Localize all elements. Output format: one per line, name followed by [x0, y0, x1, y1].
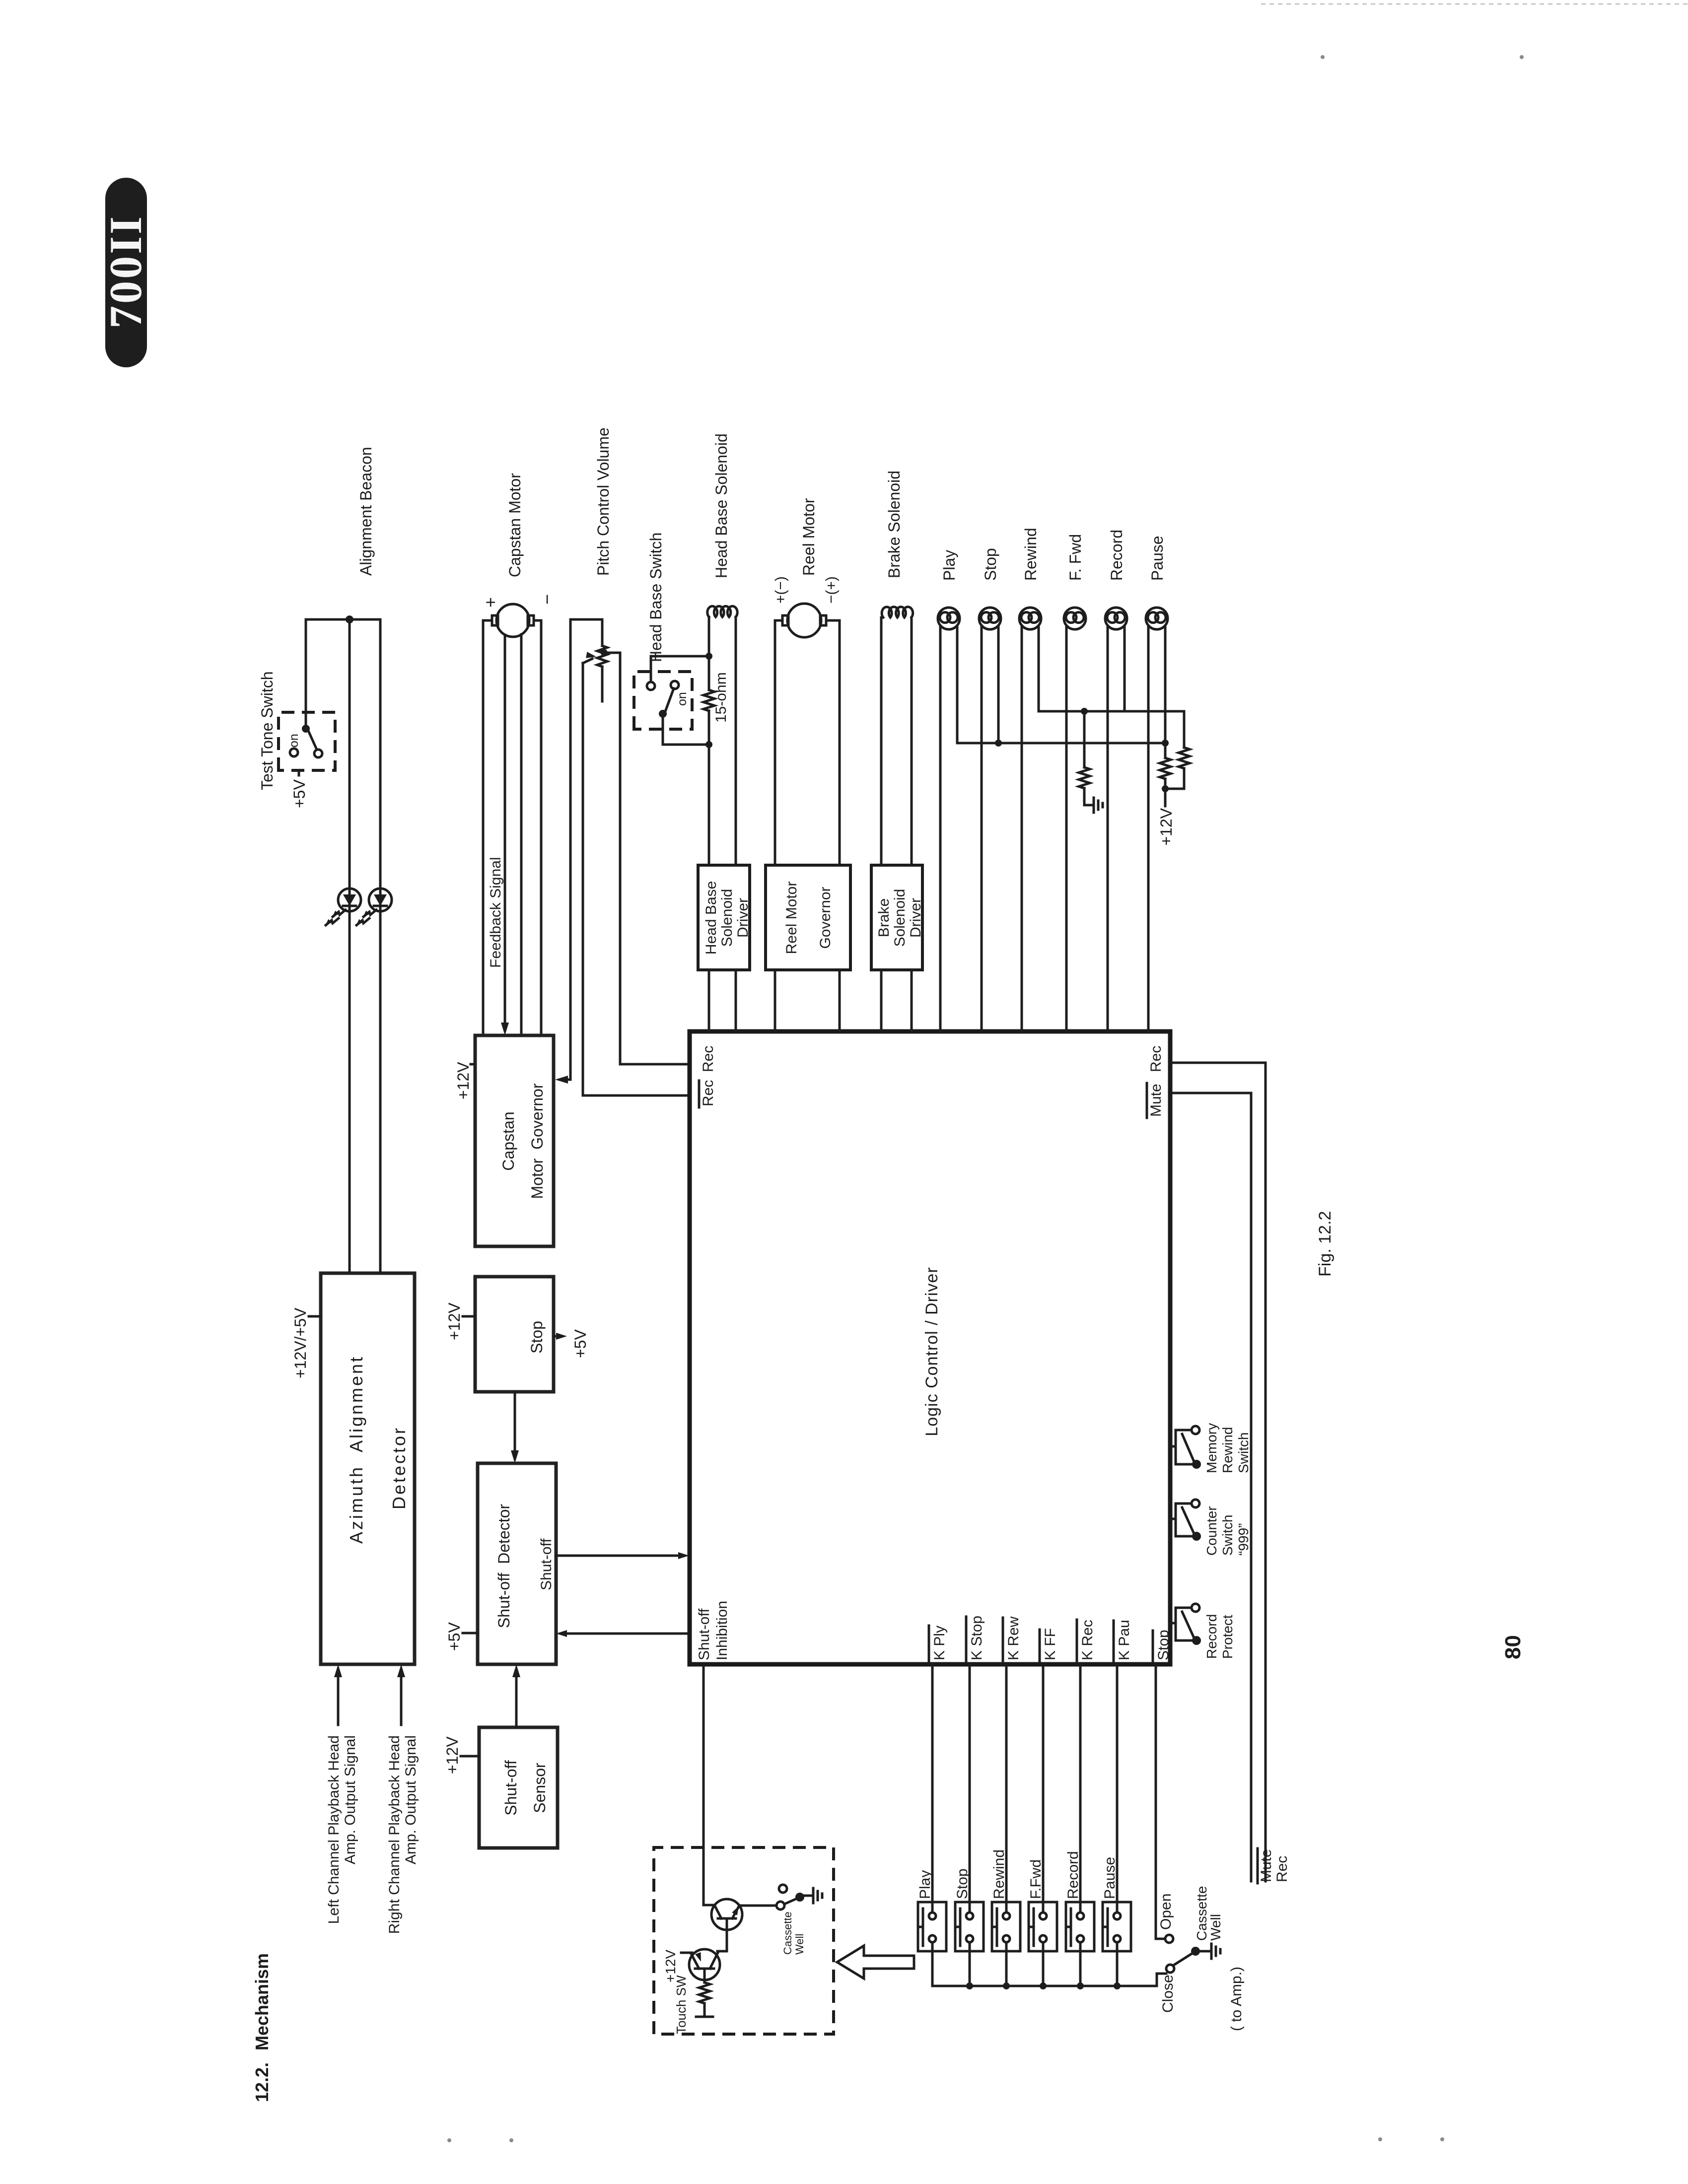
svg-text:Shut-off: Shut-off: [538, 1538, 555, 1590]
svg-text:Fig. 12.2: Fig. 12.2: [1316, 1211, 1335, 1277]
svg-text:12.2.: 12.2.: [252, 2062, 272, 2102]
svg-text:( to Amp.): ( to Amp.): [1228, 1967, 1245, 2031]
svg-text:Open: Open: [1158, 1894, 1174, 1930]
svg-text:Mute: Mute: [1148, 1084, 1164, 1117]
svg-text:+12V/+5V: +12V/+5V: [291, 1307, 309, 1378]
svg-text:700II: 700II: [100, 214, 151, 329]
svg-text:Reel Motor: Reel Motor: [800, 498, 818, 576]
svg-text:Shut-off: Shut-off: [502, 1760, 520, 1816]
svg-text:+5V: +5V: [445, 1622, 463, 1651]
svg-text:Mechanism: Mechanism: [252, 1953, 272, 2050]
svg-text:Azimuth Alignment: Azimuth Alignment: [346, 1355, 366, 1544]
svg-text:+12V: +12V: [454, 1062, 472, 1099]
svg-text:Feedback Signal: Feedback Signal: [488, 857, 504, 968]
svg-text:Left Channel Playback Head: Left Channel Playback Head: [326, 1735, 342, 1924]
svg-text:K Pau: K Pau: [1116, 1620, 1132, 1660]
svg-text:Pause: Pause: [1102, 1857, 1118, 1899]
svg-text:+12V: +12V: [663, 1950, 678, 1982]
svg-text:K Rec: K Rec: [1079, 1620, 1096, 1660]
svg-text:Touch SW: Touch SW: [674, 1975, 689, 2034]
svg-text:F. Fwd: F. Fwd: [1066, 534, 1084, 581]
svg-text:+(−): +(−): [773, 576, 789, 604]
svg-text:Rec: Rec: [1148, 1046, 1164, 1072]
svg-text:on: on: [675, 692, 689, 706]
svg-text:Record: Record: [1108, 530, 1125, 581]
svg-text:K Rew: K Rew: [1005, 1616, 1022, 1660]
svg-text:Cassette: Cassette: [1194, 1886, 1209, 1941]
svg-text:Counter: Counter: [1204, 1506, 1219, 1556]
svg-text:“999”: “999”: [1236, 1523, 1251, 1556]
svg-text:Rec: Rec: [1274, 1856, 1290, 1882]
svg-text:Amp. Output Signal: Amp. Output Signal: [342, 1735, 358, 1864]
svg-text:Stop: Stop: [982, 548, 999, 581]
svg-text:Solenoid: Solenoid: [892, 889, 908, 947]
svg-text:Capstan: Capstan: [499, 1111, 517, 1170]
svg-text:Switch: Switch: [1220, 1515, 1235, 1556]
svg-text:Sensor: Sensor: [531, 1763, 549, 1813]
svg-text:15-ohm: 15-ohm: [713, 672, 729, 723]
svg-text:Governor: Governor: [817, 887, 834, 949]
svg-text:Memory: Memory: [1204, 1423, 1219, 1473]
svg-text:Record: Record: [1065, 1851, 1081, 1899]
svg-text:Rec: Rec: [700, 1046, 716, 1072]
svg-text:+: +: [480, 597, 500, 608]
svg-text:Record: Record: [1204, 1614, 1219, 1659]
svg-text:Solenoid: Solenoid: [719, 889, 735, 947]
svg-text:Test Tone Switch: Test Tone Switch: [258, 671, 276, 790]
svg-text:Alignment Beacon: Alignment Beacon: [357, 447, 375, 576]
svg-text:Detector: Detector: [389, 1426, 409, 1509]
svg-text:Rewind: Rewind: [1022, 528, 1040, 581]
svg-text:+5V: +5V: [290, 779, 308, 808]
svg-text:Amp. Output Signal: Amp. Output Signal: [403, 1735, 419, 1864]
svg-text:Brake: Brake: [876, 898, 892, 937]
svg-text:Shut-off Detector: Shut-off Detector: [495, 1504, 513, 1629]
svg-text:−(+): −(+): [823, 576, 840, 604]
svg-text:K FF: K FF: [1042, 1628, 1058, 1660]
svg-text:Play: Play: [917, 1870, 933, 1899]
svg-text:+12V: +12V: [1157, 808, 1175, 845]
svg-text:Driver: Driver: [908, 898, 924, 938]
svg-text:Stop: Stop: [1155, 1630, 1172, 1660]
svg-text:K Stop: K Stop: [969, 1616, 985, 1660]
svg-text:Shut-off: Shut-off: [696, 1608, 712, 1660]
svg-text:Pitch Control Volume: Pitch Control Volume: [594, 427, 612, 576]
svg-text:Pause: Pause: [1148, 536, 1166, 581]
svg-text:Stop: Stop: [954, 1868, 971, 1899]
svg-text:Close: Close: [1160, 1975, 1176, 2013]
svg-text:Logic Control / Driver: Logic Control / Driver: [922, 1267, 941, 1436]
svg-text:Rewind: Rewind: [1220, 1427, 1235, 1473]
svg-text:+5V: +5V: [571, 1329, 589, 1358]
svg-text:Head Base Switch: Head Base Switch: [647, 533, 665, 662]
svg-text:+12V: +12V: [443, 1736, 461, 1774]
svg-text:Stop: Stop: [528, 1321, 546, 1354]
svg-text:Motor Governor: Motor Governor: [528, 1083, 546, 1199]
svg-text:Brake Solenoid: Brake Solenoid: [885, 471, 903, 578]
svg-text:Mute: Mute: [1258, 1849, 1274, 1882]
svg-text:Rec: Rec: [700, 1080, 716, 1106]
svg-text:Well: Well: [793, 1934, 806, 1955]
svg-text:Head Base Solenoid: Head Base Solenoid: [712, 433, 730, 578]
svg-text:F.Fwd: F.Fwd: [1028, 1859, 1044, 1899]
svg-text:−: −: [537, 594, 557, 605]
svg-text:Protect: Protect: [1220, 1615, 1235, 1659]
svg-text:Well: Well: [1208, 1914, 1223, 1941]
svg-text:Play: Play: [940, 550, 958, 581]
svg-text:on: on: [287, 734, 301, 748]
svg-text:Capstan Motor: Capstan Motor: [506, 473, 524, 577]
svg-text:Reel Motor: Reel Motor: [783, 882, 800, 955]
svg-text:Rewind: Rewind: [991, 1849, 1007, 1899]
svg-text:Right Channel Playback Head: Right Channel Playback Head: [386, 1735, 403, 1934]
svg-text:80: 80: [1501, 1635, 1525, 1659]
svg-text:Driver: Driver: [735, 898, 751, 938]
svg-text:Cassette: Cassette: [781, 1911, 794, 1955]
svg-text:K Ply: K Ply: [931, 1626, 948, 1660]
svg-text:Inhibition: Inhibition: [714, 1601, 730, 1660]
svg-text:+12V: +12V: [445, 1302, 463, 1340]
svg-text:Head Base: Head Base: [703, 881, 719, 955]
svg-text:Switch: Switch: [1236, 1433, 1251, 1473]
